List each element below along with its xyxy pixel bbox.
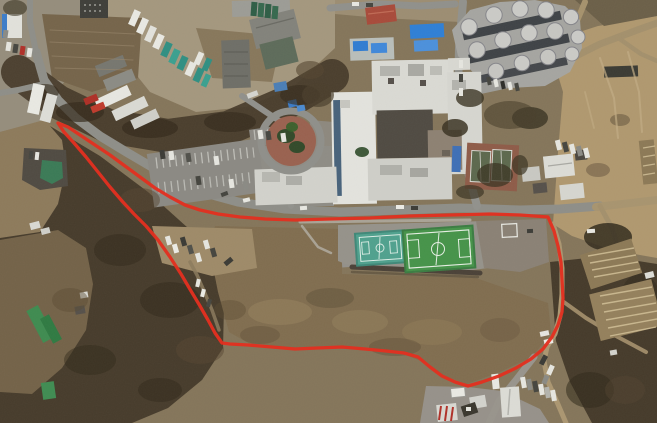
photo-grain-overlay — [0, 0, 657, 423]
satellite-map-canvas[interactable] — [0, 0, 657, 423]
screenshot — [0, 0, 657, 423]
